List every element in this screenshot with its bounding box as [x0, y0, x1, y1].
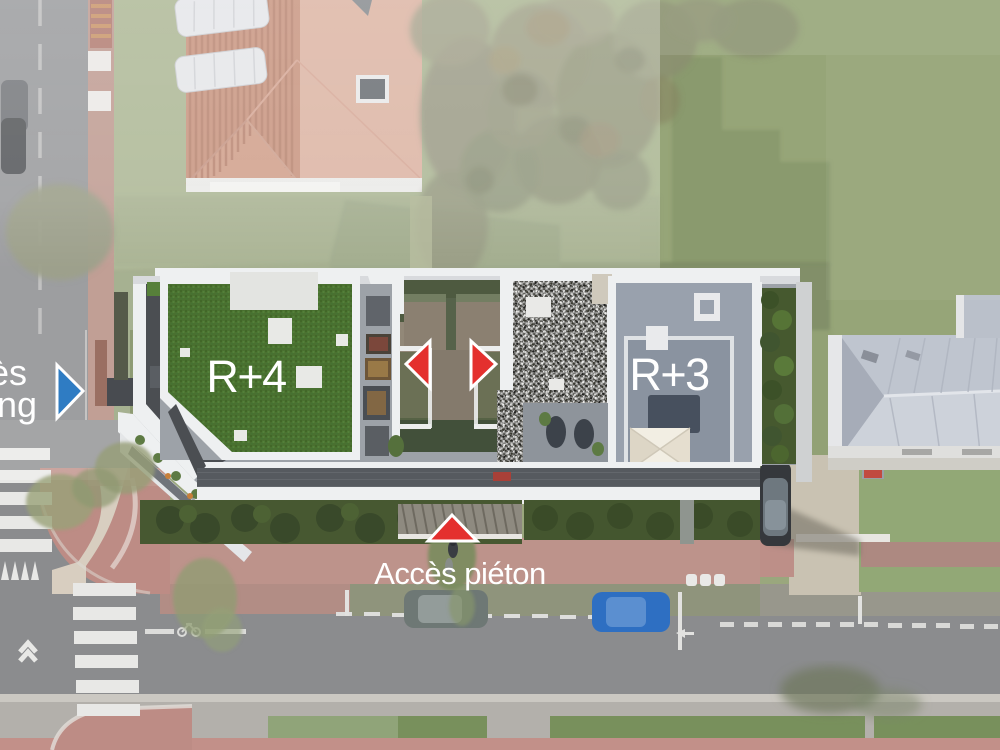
- svg-text:Accès piéton: Accès piéton: [374, 556, 546, 591]
- svg-text:R+3: R+3: [629, 349, 709, 400]
- svg-text:ing: ing: [0, 384, 37, 425]
- svg-text:R+4: R+4: [206, 351, 286, 402]
